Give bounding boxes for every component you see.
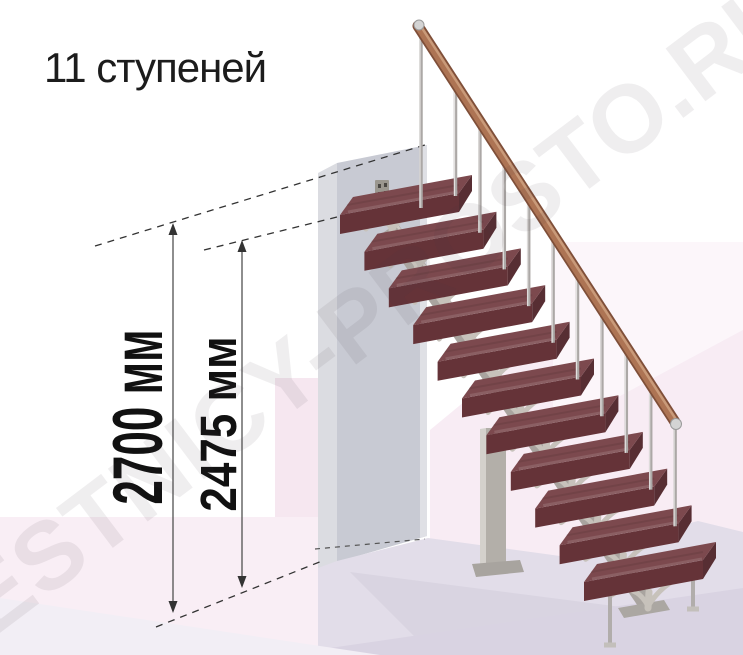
handrail-cap-top xyxy=(414,20,424,30)
staircase-diagram-page: 2700 мм 2475 мм 11 ступене xyxy=(0,0,743,655)
handrail-cap-bottom xyxy=(671,419,682,430)
staircase-diagram: 2700 мм 2475 мм 11 ступене xyxy=(0,0,743,655)
page-title: 11 ступеней xyxy=(44,44,266,91)
branch-stub xyxy=(648,592,649,608)
column-left-face xyxy=(480,428,486,573)
